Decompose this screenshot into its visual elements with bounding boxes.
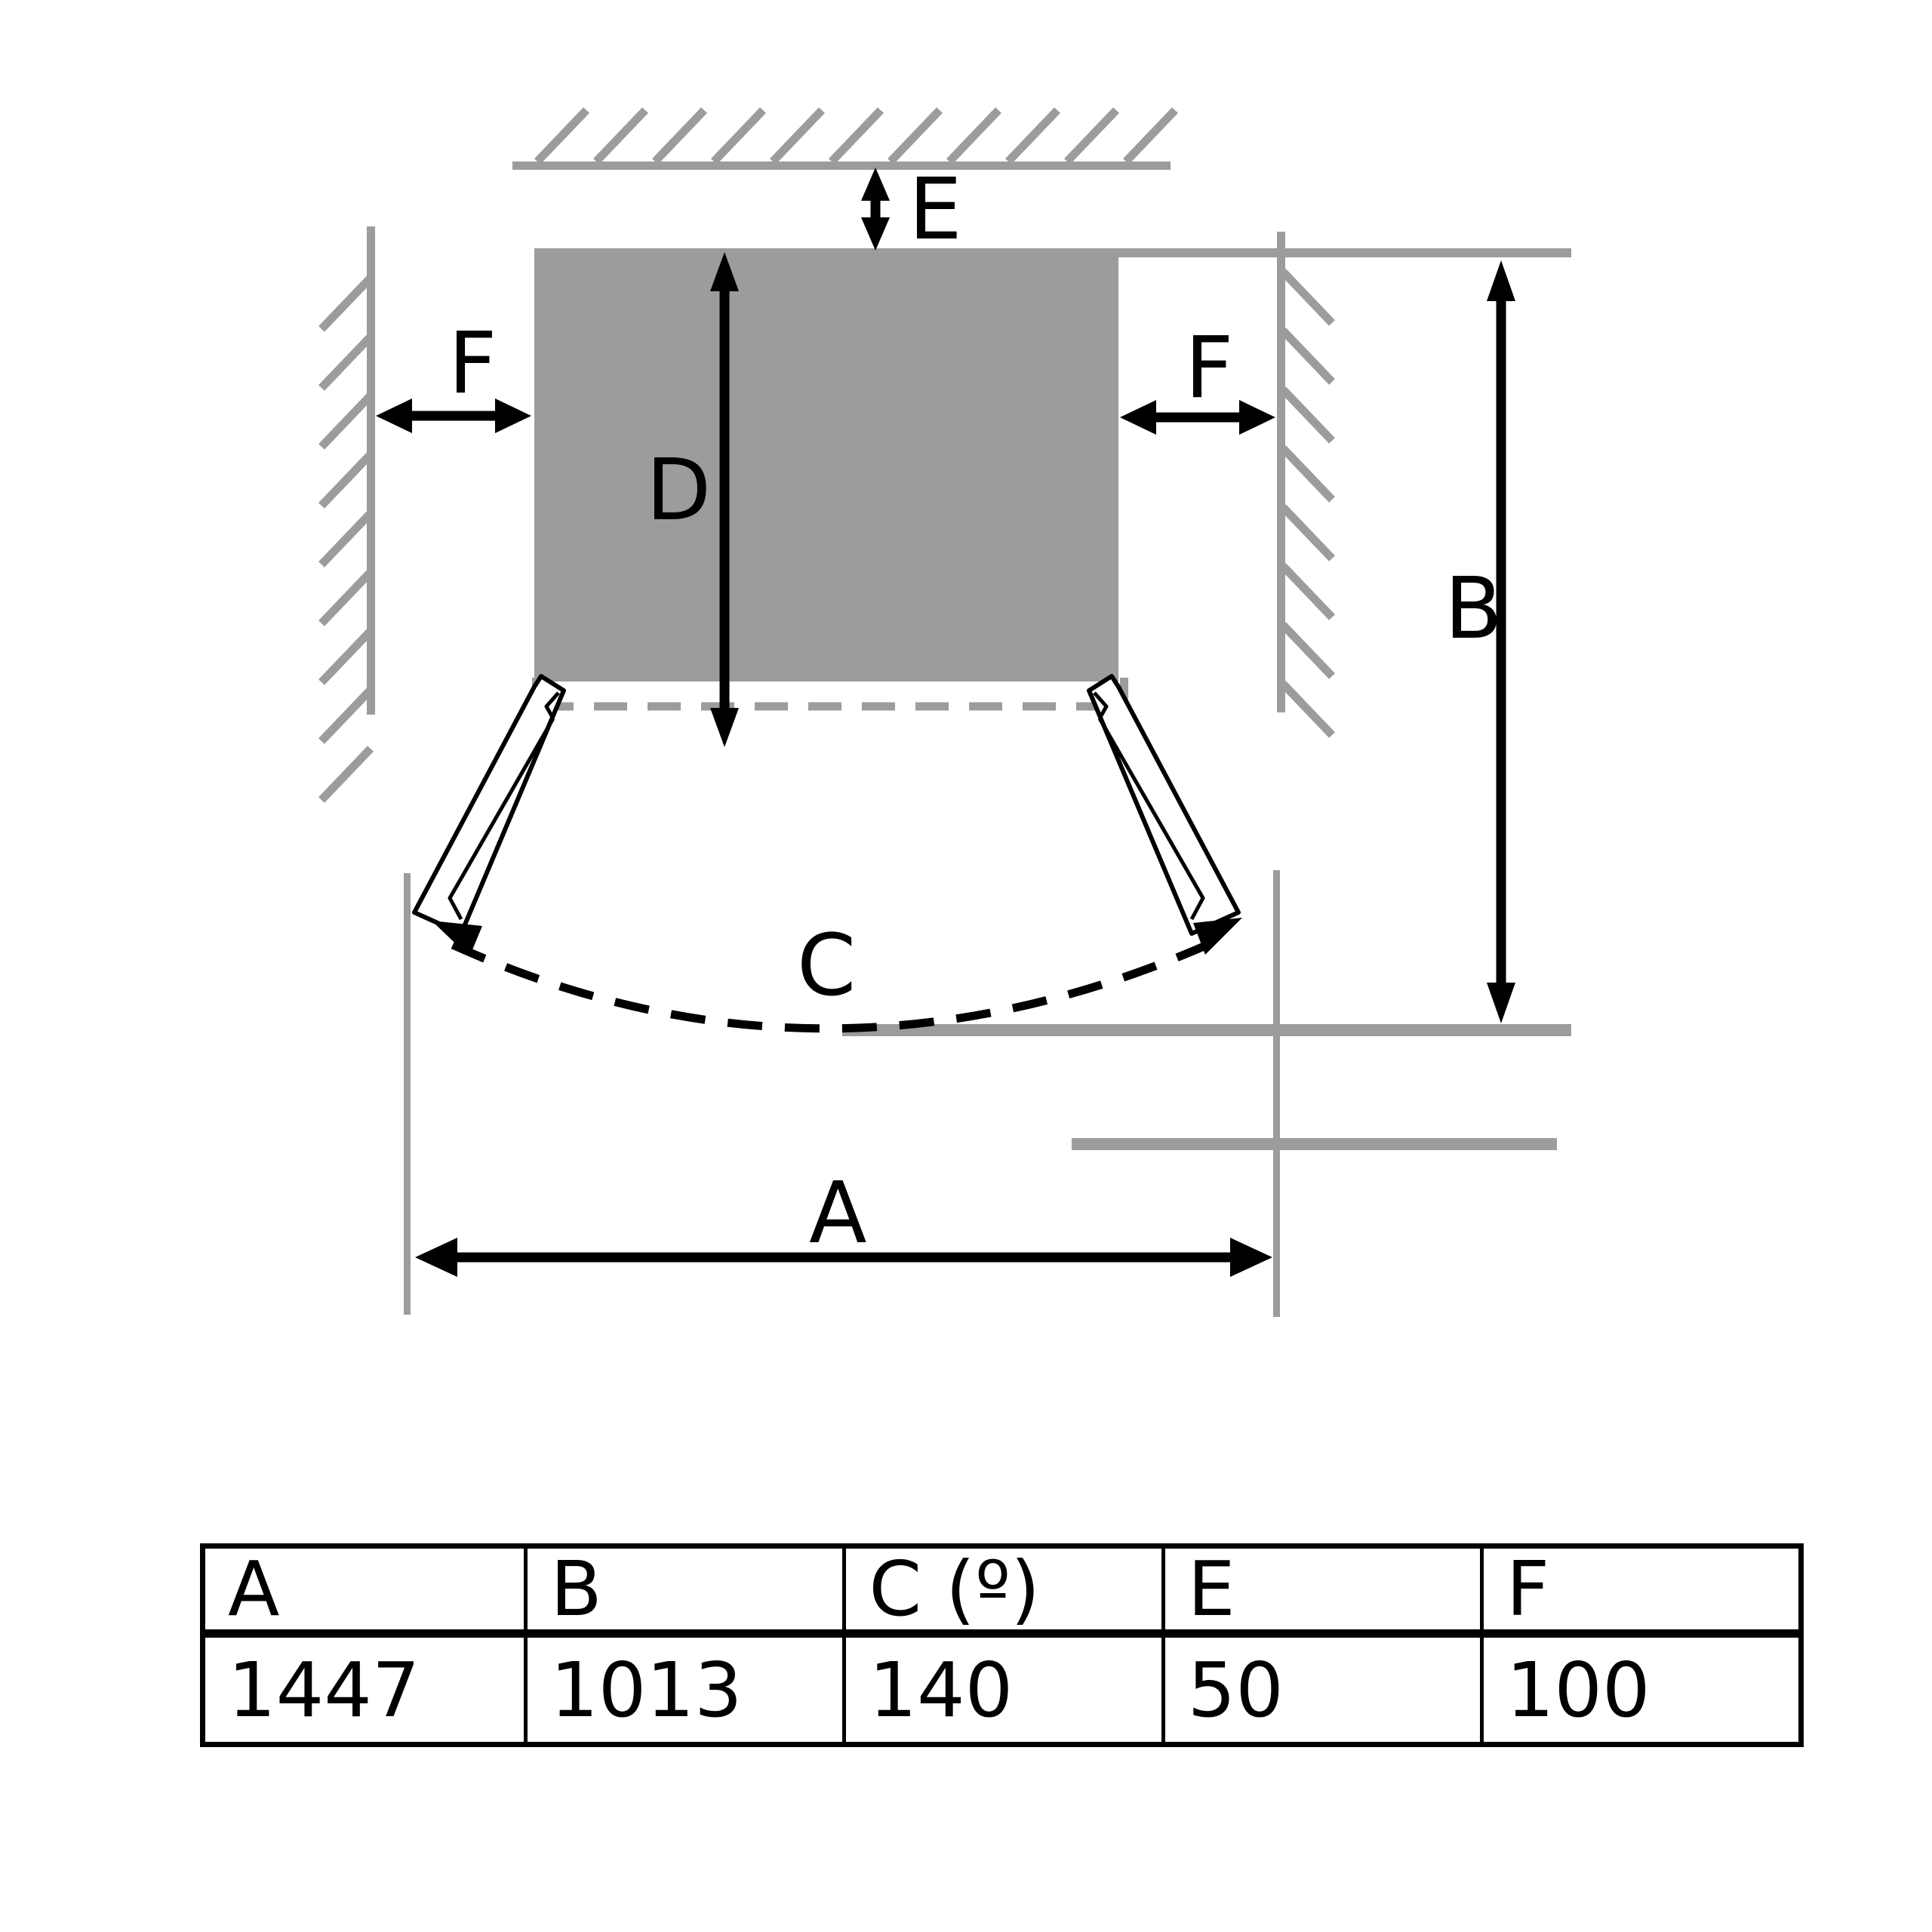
label-a: A	[809, 1164, 867, 1263]
label-c: C	[797, 917, 856, 1015]
dim-arrow-e	[861, 168, 890, 251]
table-header-a: A	[205, 1549, 524, 1638]
table-header-b: B	[524, 1549, 842, 1638]
door-left	[414, 676, 564, 934]
table-header-e: E	[1161, 1549, 1480, 1638]
niche-front-dashed-edge	[532, 678, 1129, 710]
right-wall-hatching	[1283, 272, 1332, 735]
right-wall	[1277, 232, 1332, 735]
top-reference-line	[1118, 248, 1571, 257]
label-f-left: F	[448, 315, 497, 413]
dimensions-table: A B C (º) E F 1447 1013 140 50 100	[200, 1543, 1804, 1747]
top-wall	[512, 110, 1175, 170]
left-wall-hatching	[321, 278, 371, 800]
table-header-c: C (º)	[842, 1549, 1161, 1638]
label-e: E	[909, 161, 962, 259]
page: E F F D B C A A B C (º) E F 1447 1013 14…	[0, 0, 1932, 1932]
table-value-f: 100	[1480, 1638, 1798, 1742]
appliance-body	[534, 248, 1118, 681]
label-d: D	[646, 441, 711, 540]
reference-bar-lower	[1072, 1138, 1557, 1150]
table-value-e: 50	[1161, 1638, 1480, 1742]
door-right	[1089, 676, 1238, 934]
label-f-right: F	[1185, 319, 1233, 417]
table-value-a: 1447	[205, 1638, 524, 1742]
extension-line-left	[404, 873, 411, 1315]
label-b: B	[1444, 560, 1503, 658]
table-value-c: 140	[842, 1638, 1161, 1742]
reference-bar-upper	[842, 1024, 1571, 1036]
left-wall	[321, 226, 375, 800]
top-wall-hatching	[537, 110, 1175, 162]
table-value-b: 1013	[524, 1638, 842, 1742]
extension-line-right	[1273, 870, 1280, 1317]
table-header-f: F	[1480, 1549, 1798, 1638]
